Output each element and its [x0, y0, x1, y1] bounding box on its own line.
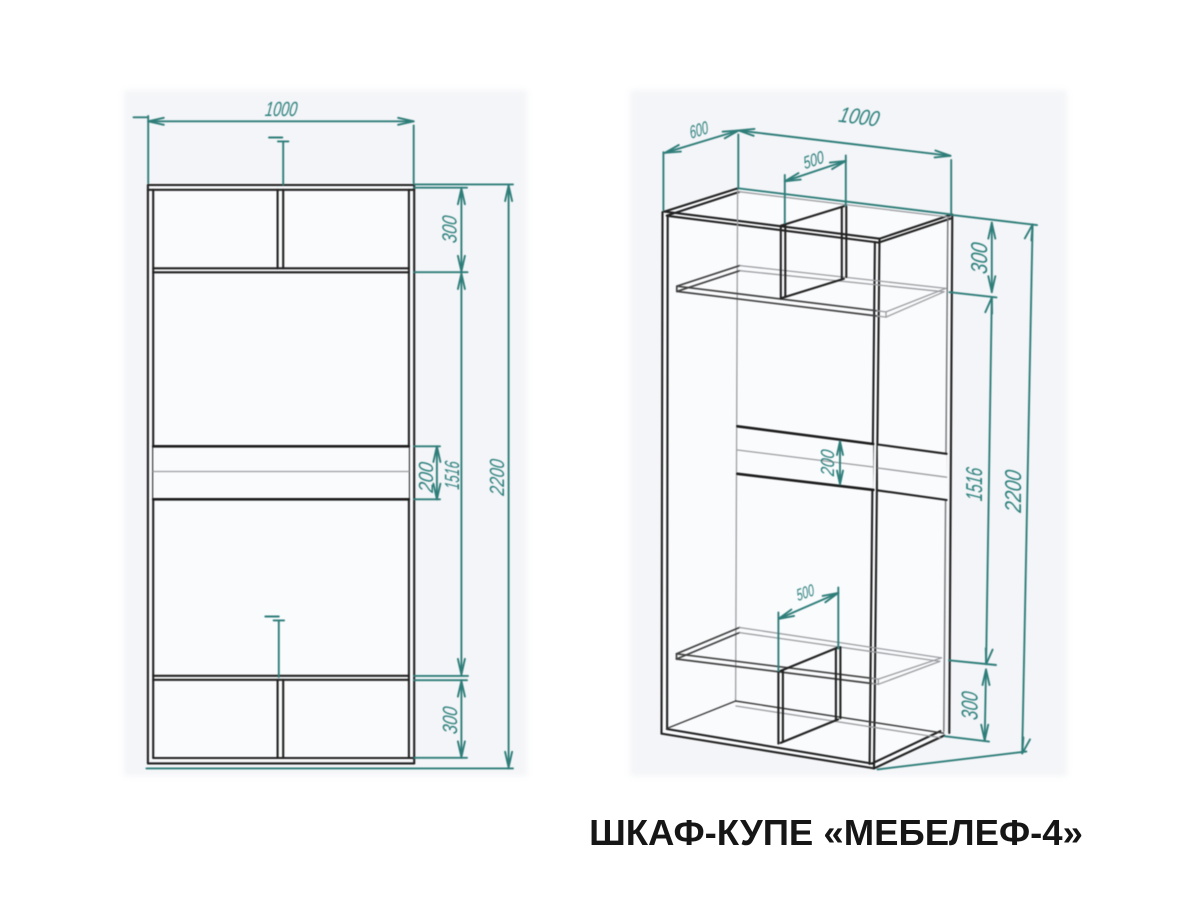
svg-text:1000: 1000	[264, 98, 299, 121]
svg-text:300: 300	[957, 690, 983, 721]
svg-text:2200: 2200	[1000, 468, 1026, 514]
svg-text:200: 200	[415, 460, 438, 494]
svg-text:600: 600	[688, 117, 710, 143]
svg-text:1516: 1516	[441, 459, 464, 490]
svg-text:2200: 2200	[486, 457, 509, 497]
svg-text:300: 300	[439, 705, 462, 735]
svg-text:200: 200	[818, 448, 839, 478]
svg-text:300: 300	[966, 241, 992, 275]
svg-text:300: 300	[439, 214, 462, 244]
svg-text:1516: 1516	[961, 466, 987, 502]
svg-text:1000: 1000	[836, 102, 882, 131]
